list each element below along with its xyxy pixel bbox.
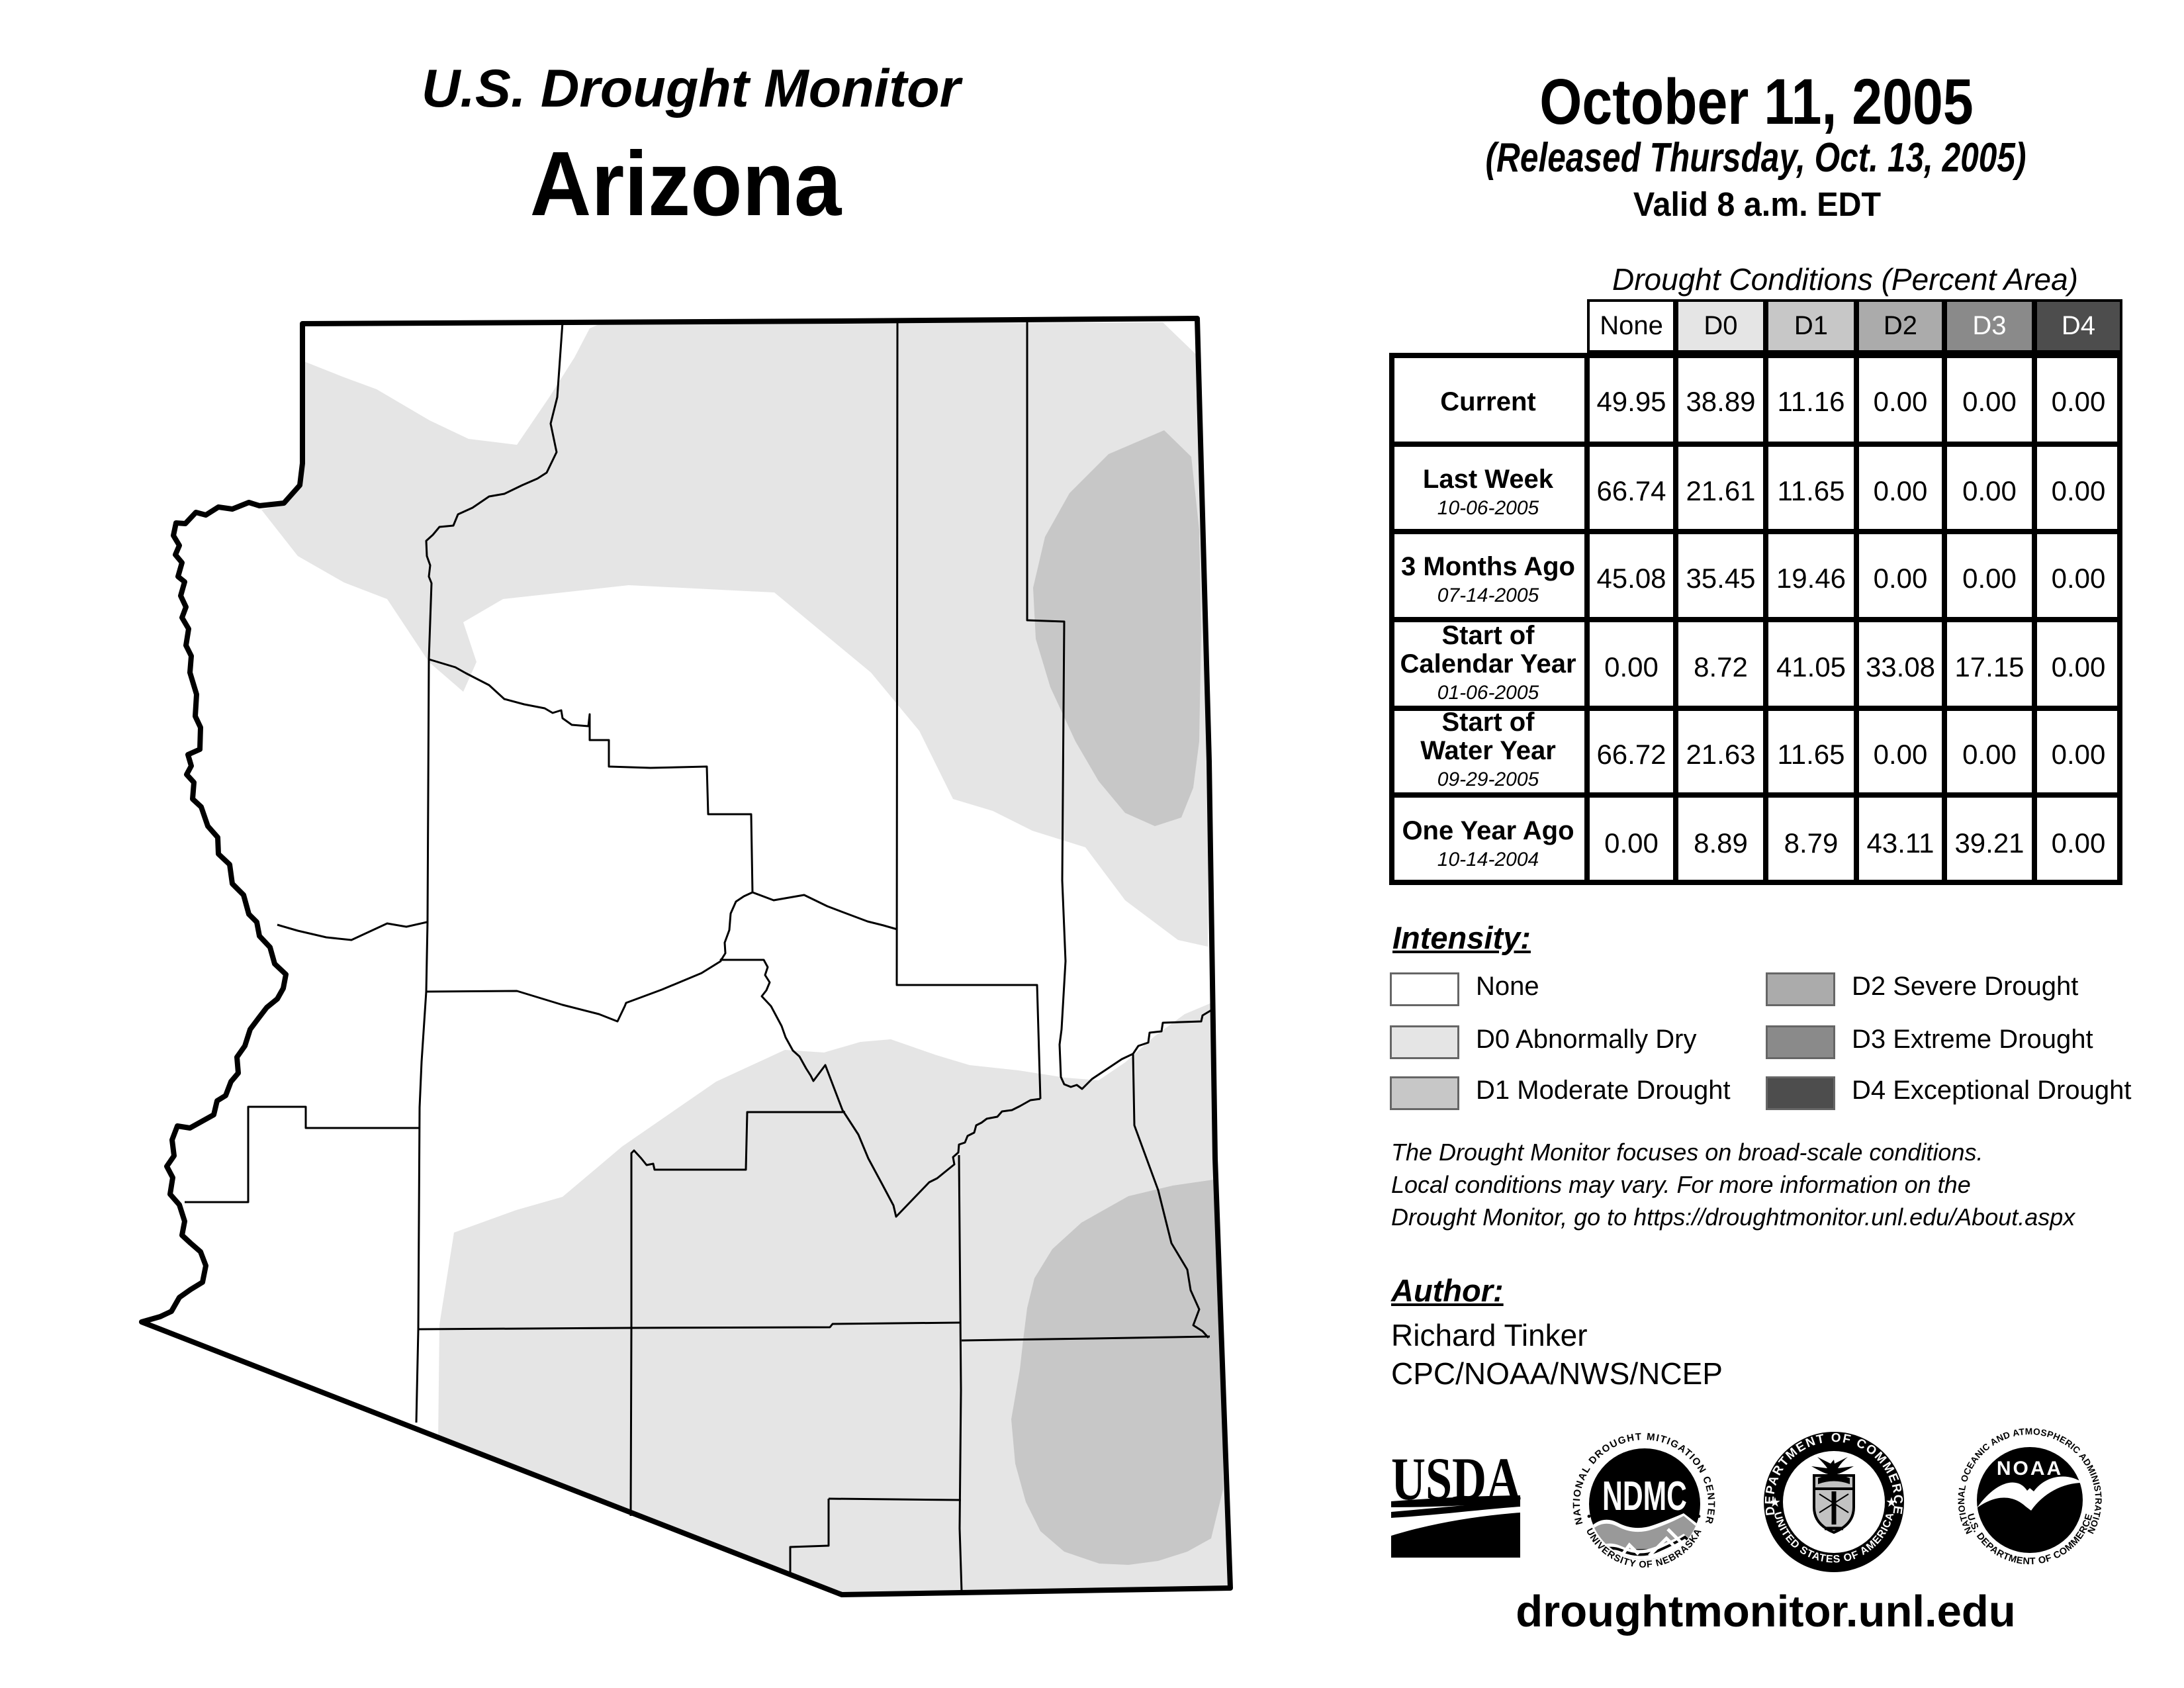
svg-text:NDMC: NDMC: [1602, 1474, 1687, 1519]
svg-text:NOAA: NOAA: [1997, 1458, 2063, 1479]
svg-text:•: •: [1697, 1510, 1701, 1523]
svg-text:•: •: [1587, 1510, 1591, 1523]
svg-text:★: ★: [1769, 1495, 1781, 1510]
svg-text:★: ★: [1886, 1495, 1897, 1510]
